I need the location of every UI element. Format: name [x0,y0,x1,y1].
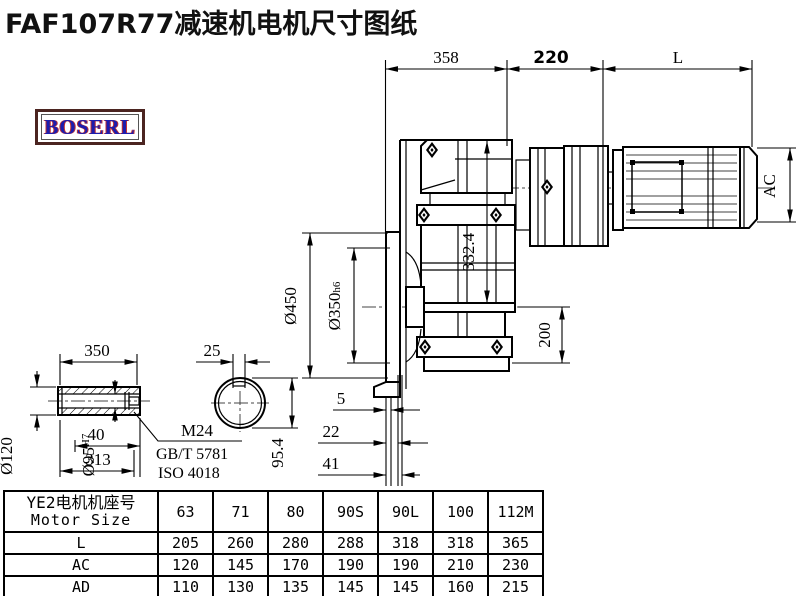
row-label: AC [4,554,158,576]
standard-gb: GB/T 5781 [156,446,228,463]
cell: 280 [268,532,323,554]
table-header-row: YE2电机机座号 Motor Size 63 71 80 90S 90L 100… [4,491,543,532]
dim-5: 5 [337,389,346,408]
table-row-AC: AC 120 145 170 190 190 210 230 [4,554,543,576]
row-label: L [4,532,158,554]
cell: 135 [268,576,323,596]
motor [613,147,757,230]
cell: 230 [488,554,543,576]
header-en: Motor Size [5,512,157,529]
size-80: 80 [268,491,323,532]
cell: 120 [158,554,213,576]
dim-358: 358 [433,48,459,67]
dim-total-height: 332.4 [459,232,478,271]
table-row-AD: AD 110 130 135 145 145 160 215 [4,576,543,596]
dim-flange: Ø450 Ø350h6 [281,233,390,378]
cell: 318 [378,532,433,554]
dim-L: L [673,48,683,67]
cell: 215 [488,576,543,596]
thread-callout: M24 [181,421,214,440]
dim-center-to-base: 200 [535,322,554,348]
gearbox-body [400,140,515,389]
table-row-L: L 205 260 280 288 318 318 365 [4,532,543,554]
dim-220: 220 [533,48,569,68]
cell: 205 [158,532,213,554]
cell: 145 [213,554,268,576]
drawing-sheet: FAF107R77减速机电机尺寸图纸 BOSERL [0,0,800,596]
cell: 145 [378,576,433,596]
cell: 288 [323,532,378,554]
cell: 160 [433,576,488,596]
dim-313: 313 [85,450,111,469]
size-71: 71 [213,491,268,532]
dim-spigot: Ø350h6 [325,281,344,330]
cell: 260 [213,532,268,554]
cell: 190 [323,554,378,576]
cell: 318 [433,532,488,554]
dim-41: 41 [323,454,340,473]
dim-350: 350 [84,341,110,360]
size-90L: 90L [378,491,433,532]
header-cn: YE2电机机座号 [5,494,157,512]
cell: 110 [158,576,213,596]
size-100: 100 [433,491,488,532]
cell: 210 [433,554,488,576]
dim-95-4: 95.4 [268,438,287,468]
dim-AC: AC [760,174,779,198]
cell: 170 [268,554,323,576]
cell: 145 [323,576,378,596]
motor-size-table: YE2电机机座号 Motor Size 63 71 80 90S 90L 100… [3,490,544,596]
output-flange [374,232,424,397]
cell: 190 [378,554,433,576]
table-header-cell: YE2电机机座号 Motor Size [4,491,158,532]
size-90S: 90S [323,491,378,532]
dim-25: 25 [204,341,221,360]
dim-od120: Ø120 [0,437,16,475]
row-label: AD [4,576,158,596]
size-63: 63 [158,491,213,532]
fan-cover [740,147,757,228]
standard-iso: ISO 4018 [158,465,220,482]
dim-ac: AC [757,148,796,222]
dim-flange-od: Ø450 [281,287,300,325]
cell: 130 [213,576,268,596]
dim-22: 22 [323,422,340,441]
dim-40: 40 [88,425,105,444]
size-112M: 112M [488,491,543,532]
cell: 365 [488,532,543,554]
motor-adapter [516,146,613,246]
